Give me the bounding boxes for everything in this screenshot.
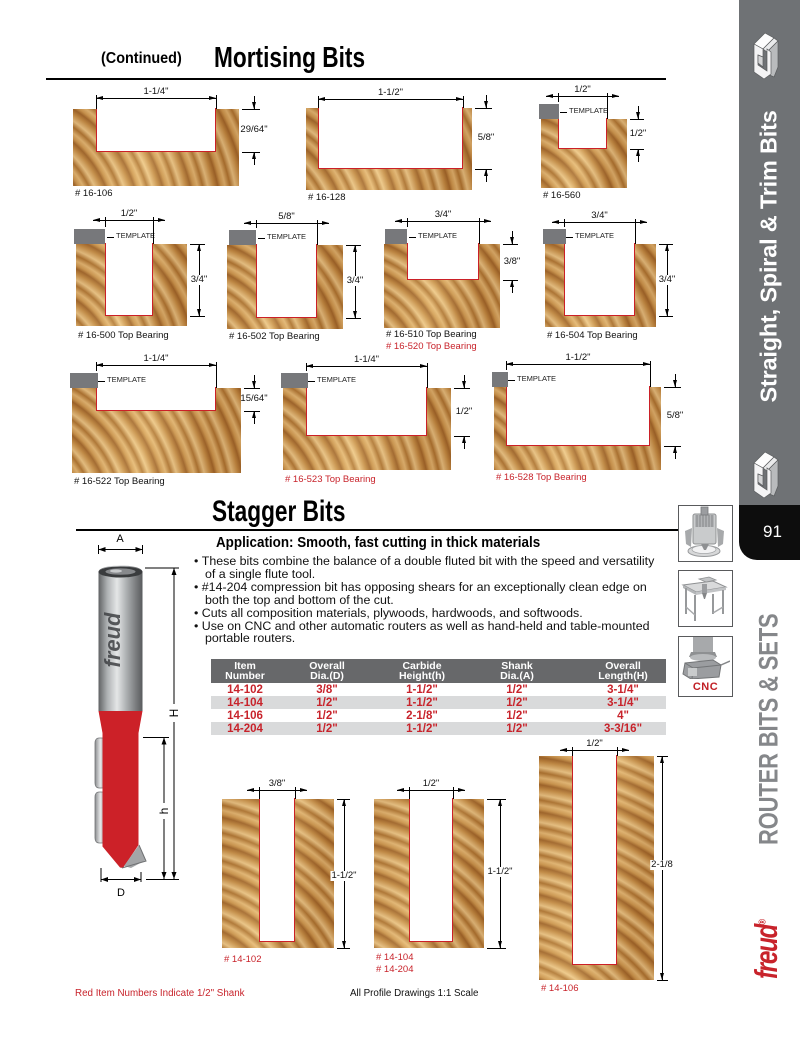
svg-text:h: h	[157, 808, 171, 815]
svg-text:D: D	[117, 887, 125, 899]
svg-text:freud: freud	[100, 612, 125, 668]
svg-text:A: A	[116, 533, 124, 545]
svg-text:H: H	[167, 709, 181, 718]
